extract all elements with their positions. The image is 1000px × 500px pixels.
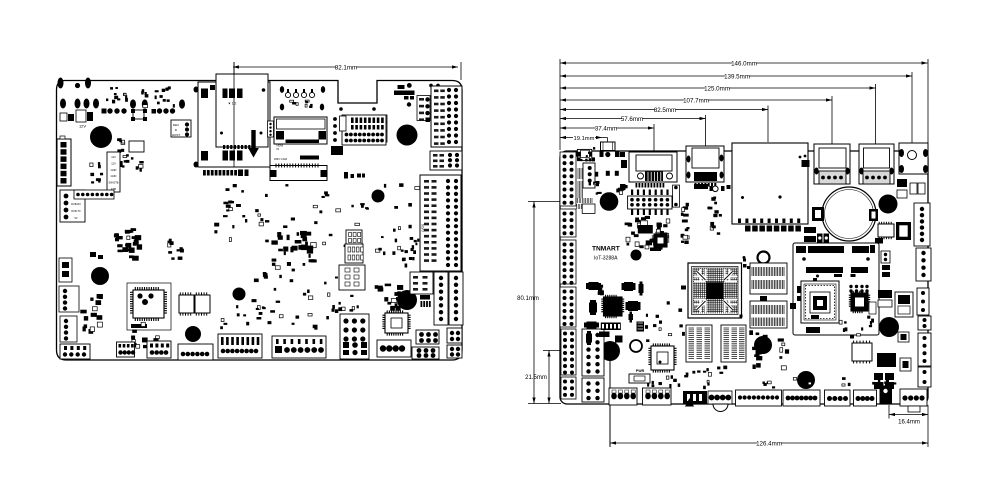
svg-text:80.1mm: 80.1mm	[517, 296, 539, 302]
svg-text:82.1mm: 82.1mm	[335, 64, 357, 71]
svg-text:12V: 12V	[79, 124, 86, 129]
svg-text:LVDS: LVDS	[421, 224, 425, 232]
svg-text:PWR: PWR	[636, 369, 645, 373]
svg-text:125.0mm: 125.0mm	[704, 85, 730, 92]
svg-text:▼ 1 2: ▼ 1 2	[228, 102, 237, 106]
svg-text:GND: GND	[111, 168, 117, 172]
svg-text:126.4mm: 126.4mm	[756, 440, 782, 447]
svg-text:IN: IN	[277, 147, 280, 151]
svg-text:16.4mm: 16.4mm	[898, 420, 920, 426]
svg-text:12V: 12V	[111, 155, 116, 159]
svg-text:DUB-RX: DUB-RX	[71, 203, 81, 206]
svg-text:TNMART: TNMART	[592, 246, 620, 253]
svg-text:139.5mm: 139.5mm	[724, 73, 750, 80]
svg-text:SW-ETB: SW-ETB	[108, 181, 118, 185]
svg-text:HOST: HOST	[172, 133, 181, 137]
svg-text:19.1mm: 19.1mm	[574, 136, 595, 142]
svg-text:107.7mm: 107.7mm	[683, 97, 709, 104]
svg-text:GND: GND	[111, 174, 117, 178]
svg-text:IoT-3288A: IoT-3288A	[594, 256, 618, 262]
svg-text:82.5mm: 82.5mm	[654, 107, 676, 114]
svg-text:57.6mm: 57.6mm	[621, 116, 643, 123]
svg-text:21.5mm: 21.5mm	[525, 375, 547, 381]
svg-text:5V: 5V	[74, 217, 77, 220]
svg-text:146.0mm: 146.0mm	[731, 60, 757, 67]
svg-text:37.4mm: 37.4mm	[595, 125, 617, 132]
svg-text:12V: 12V	[111, 161, 116, 165]
svg-text:DUB-TX: DUB-TX	[71, 210, 81, 213]
svg-text:DEV: DEV	[173, 123, 179, 127]
svg-text:WIFI CAM: WIFI CAM	[274, 157, 288, 161]
